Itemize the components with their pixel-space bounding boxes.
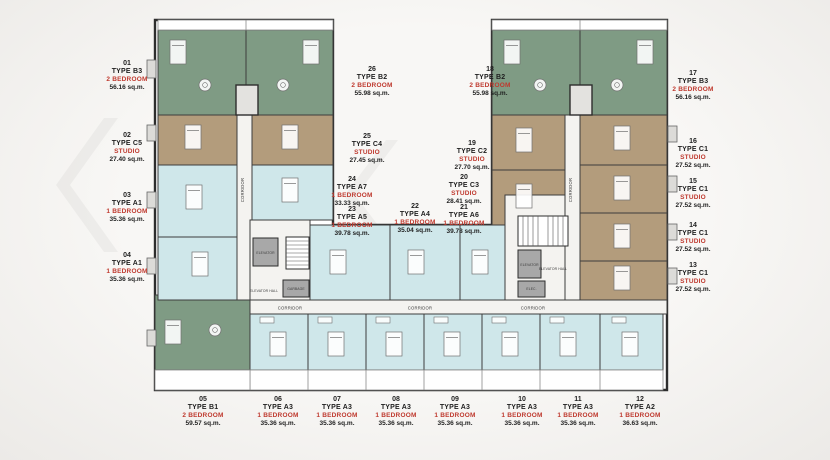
unit-12-type: TYPE A2	[619, 404, 660, 412]
unit-label-07: 07TYPE A31 BEDROOM35.36 sq.m.	[316, 396, 357, 428]
unit-25-area: 27.45 sq.m.	[349, 157, 384, 165]
unit-16-category: STUDIO	[675, 154, 710, 162]
unit-02-no: 02	[109, 132, 144, 140]
unit-label-03: 03TYPE A11 BEDROOM35.36 sq.m.	[106, 192, 147, 224]
unit-19-category: STUDIO	[454, 156, 489, 164]
unit-08-area: 35.36 sq.m.	[375, 420, 416, 428]
unit-02-type: TYPE C5	[109, 140, 144, 148]
unit-06-type: TYPE A3	[257, 404, 298, 412]
unit-18-area: 55.98 sq.m.	[469, 90, 510, 98]
unit-25-no: 25	[349, 133, 384, 141]
unit-22-area: 35.04 sq.m.	[394, 227, 435, 235]
unit-13-category: STUDIO	[675, 278, 710, 286]
unit-09-area: 35.36 sq.m.	[434, 420, 475, 428]
unit-08-type: TYPE A3	[375, 404, 416, 412]
unit-15-area: 27.52 sq.m.	[675, 202, 710, 210]
unit-26-area: 55.98 sq.m.	[351, 90, 392, 98]
unit-04-area: 35.36 sq.m.	[106, 276, 147, 284]
unit-10-category: 1 BEDROOM	[501, 412, 542, 420]
unit-07-no: 07	[316, 396, 357, 404]
unit-15-no: 15	[675, 178, 710, 186]
unit-16-type: TYPE C1	[675, 146, 710, 154]
unit-label-23: 23TYPE A51 BEDROOM39.78 sq.m.	[331, 206, 372, 238]
elevator-right-label: ELEVATOR	[520, 263, 539, 267]
unit-03-category: 1 BEDROOM	[106, 208, 147, 216]
elevator-hall-right-label: ELEVATOR HALL	[539, 267, 567, 271]
unit-18-category: 2 BEDROOM	[469, 82, 510, 90]
unit-14-area: 27.52 sq.m.	[675, 246, 710, 254]
unit-07-category: 1 BEDROOM	[316, 412, 357, 420]
unit-09-type: TYPE A3	[434, 404, 475, 412]
unit-rooms	[155, 30, 667, 370]
unit-01-area: 56.16 sq.m.	[106, 84, 147, 92]
unit-label-06: 06TYPE A31 BEDROOM35.36 sq.m.	[257, 396, 298, 428]
unit-label-12: 12TYPE A21 BEDROOM36.63 sq.m.	[619, 396, 660, 428]
unit-22-no: 22	[394, 203, 435, 211]
unit-15-type: TYPE C1	[675, 186, 710, 194]
unit-03-no: 03	[106, 192, 147, 200]
unit-26-room	[246, 30, 333, 115]
unit-06-area: 35.36 sq.m.	[257, 420, 298, 428]
unit-01-type: TYPE B3	[106, 68, 147, 76]
unit-25-category: STUDIO	[349, 149, 384, 157]
unit-07-area: 35.36 sq.m.	[316, 420, 357, 428]
right-core	[505, 195, 568, 300]
unit-04-no: 04	[106, 252, 147, 260]
unit-16-area: 27.52 sq.m.	[675, 162, 710, 170]
unit-17-area: 56.16 sq.m.	[672, 94, 713, 102]
unit-17-type: TYPE B3	[672, 78, 713, 86]
unit-18-no: 18	[469, 66, 510, 74]
unit-05-type: TYPE B1	[182, 404, 223, 412]
corridor-bottom-2-label: CORRIDOR	[408, 306, 432, 311]
unit-20-no: 20	[446, 174, 481, 182]
unit-04-type: TYPE A1	[106, 260, 147, 268]
unit-19-no: 19	[454, 140, 489, 148]
unit-20-category: STUDIO	[446, 190, 481, 198]
unit-10-no: 10	[501, 396, 542, 404]
stair-right	[518, 216, 568, 246]
unit-label-19: 19TYPE C2STUDIO27.70 sq.m.	[454, 140, 489, 172]
unit-12-no: 12	[619, 396, 660, 404]
unit-09-category: 1 BEDROOM	[434, 412, 475, 420]
unit-21-category: 1 BEDROOM	[443, 220, 484, 228]
unit-03-area: 35.36 sq.m.	[106, 216, 147, 224]
unit-10-type: TYPE A3	[501, 404, 542, 412]
unit-13-area: 27.52 sq.m.	[675, 286, 710, 294]
unit-26-type: TYPE B2	[351, 74, 392, 82]
unit-10-area: 35.36 sq.m.	[501, 420, 542, 428]
unit-22-type: TYPE A4	[394, 211, 435, 219]
floor-plan-canvas: ELEVATOR ELEVATOR HALL GARBAGE ELEVATOR …	[0, 0, 830, 460]
unit-22-category: 1 BEDROOM	[394, 219, 435, 227]
elevator-hall-left-label: ELEVATOR HALL	[250, 289, 278, 293]
unit-label-18: 18TYPE B22 BEDROOM55.98 sq.m.	[469, 66, 510, 98]
unit-24-area: 33.33 sq.m.	[331, 200, 372, 208]
unit-04-category: 1 BEDROOM	[106, 268, 147, 276]
unit-21-no: 21	[443, 204, 484, 212]
unit-26-no: 26	[351, 66, 392, 74]
unit-02-category: STUDIO	[109, 148, 144, 156]
unit-23-type: TYPE A5	[331, 214, 372, 222]
unit-20-type: TYPE C3	[446, 182, 481, 190]
unit-label-02: 02TYPE C5STUDIO27.40 sq.m.	[109, 132, 144, 164]
unit-08-category: 1 BEDROOM	[375, 412, 416, 420]
unit-label-16: 16TYPE C1STUDIO27.52 sq.m.	[675, 138, 710, 170]
unit-label-11: 11TYPE A31 BEDROOM35.36 sq.m.	[557, 396, 598, 428]
unit-23-area: 39.78 sq.m.	[331, 230, 372, 238]
unit-21-area: 39.78 sq.m.	[443, 228, 484, 236]
unit-16-no: 16	[675, 138, 710, 146]
unit-05-no: 05	[182, 396, 223, 404]
unit-26-category: 2 BEDROOM	[351, 82, 392, 90]
unit-01-no: 01	[106, 60, 147, 68]
unit-14-no: 14	[675, 222, 710, 230]
unit-19-area: 27.70 sq.m.	[454, 164, 489, 172]
unit-label-24: 24TYPE A71 BEDROOM33.33 sq.m.	[331, 176, 372, 208]
unit-label-14: 14TYPE C1STUDIO27.52 sq.m.	[675, 222, 710, 254]
elec-label: ELEC.	[526, 287, 536, 291]
unit-02-area: 27.40 sq.m.	[109, 156, 144, 164]
corridor-right-vertical-label: CORRIDOR	[568, 178, 573, 202]
unit-08-no: 08	[375, 396, 416, 404]
unit-07-type: TYPE A3	[316, 404, 357, 412]
corridor-left-vertical-label: CORRIDOR	[240, 178, 245, 202]
unit-label-15: 15TYPE C1STUDIO27.52 sq.m.	[675, 178, 710, 210]
unit-19-type: TYPE C2	[454, 148, 489, 156]
unit-24-no: 24	[331, 176, 372, 184]
unit-13-type: TYPE C1	[675, 270, 710, 278]
unit-06-category: 1 BEDROOM	[257, 412, 298, 420]
unit-21-type: TYPE A6	[443, 212, 484, 220]
unit-label-21: 21TYPE A61 BEDROOM39.78 sq.m.	[443, 204, 484, 236]
unit-05-area: 59.57 sq.m.	[182, 420, 223, 428]
unit-11-no: 11	[557, 396, 598, 404]
unit-18-type: TYPE B2	[469, 74, 510, 82]
unit-23-category: 1 BEDROOM	[331, 222, 372, 230]
unit-24-type: TYPE A7	[331, 184, 372, 192]
unit-label-01: 01TYPE B32 BEDROOM56.16 sq.m.	[106, 60, 147, 92]
unit-15-category: STUDIO	[675, 194, 710, 202]
unit-24-category: 1 BEDROOM	[331, 192, 372, 200]
unit-11-area: 35.36 sq.m.	[557, 420, 598, 428]
garbage-label: GARBAGE	[287, 287, 305, 291]
unit-label-10: 10TYPE A31 BEDROOM35.36 sq.m.	[501, 396, 542, 428]
corridor-bottom-1-label: CORRIDOR	[278, 306, 302, 311]
unit-05-category: 2 BEDROOM	[182, 412, 223, 420]
unit-22-room	[390, 225, 460, 300]
unit-label-09: 09TYPE A31 BEDROOM35.36 sq.m.	[434, 396, 475, 428]
unit-17-category: 2 BEDROOM	[672, 86, 713, 94]
unit-label-17: 17TYPE B32 BEDROOM56.16 sq.m.	[672, 70, 713, 102]
unit-13-no: 13	[675, 262, 710, 270]
elevator-left-label: ELEVATOR	[256, 251, 275, 255]
unit-17-room	[580, 30, 667, 115]
unit-09-no: 09	[434, 396, 475, 404]
unit-label-22: 22TYPE A41 BEDROOM35.04 sq.m.	[394, 203, 435, 235]
unit-label-20: 20TYPE C3STUDIO28.41 sq.m.	[446, 174, 481, 206]
unit-label-04: 04TYPE A11 BEDROOM35.36 sq.m.	[106, 252, 147, 284]
unit-03-type: TYPE A1	[106, 200, 147, 208]
unit-label-08: 08TYPE A31 BEDROOM35.36 sq.m.	[375, 396, 416, 428]
unit-14-type: TYPE C1	[675, 230, 710, 238]
unit-12-category: 1 BEDROOM	[619, 412, 660, 420]
corridor-bottom-3-label: CORRIDOR	[521, 306, 545, 311]
unit-25-type: TYPE C4	[349, 141, 384, 149]
unit-label-25: 25TYPE C4STUDIO27.45 sq.m.	[349, 133, 384, 165]
unit-11-category: 1 BEDROOM	[557, 412, 598, 420]
unit-01-category: 2 BEDROOM	[106, 76, 147, 84]
unit-label-05: 05TYPE B12 BEDROOM59.57 sq.m.	[182, 396, 223, 428]
unit-14-category: STUDIO	[675, 238, 710, 246]
unit-17-no: 17	[672, 70, 713, 78]
unit-label-26: 26TYPE B22 BEDROOM55.98 sq.m.	[351, 66, 392, 98]
unit-label-13: 13TYPE C1STUDIO27.52 sq.m.	[675, 262, 710, 294]
unit-11-type: TYPE A3	[557, 404, 598, 412]
unit-06-no: 06	[257, 396, 298, 404]
unit-12-area: 36.63 sq.m.	[619, 420, 660, 428]
